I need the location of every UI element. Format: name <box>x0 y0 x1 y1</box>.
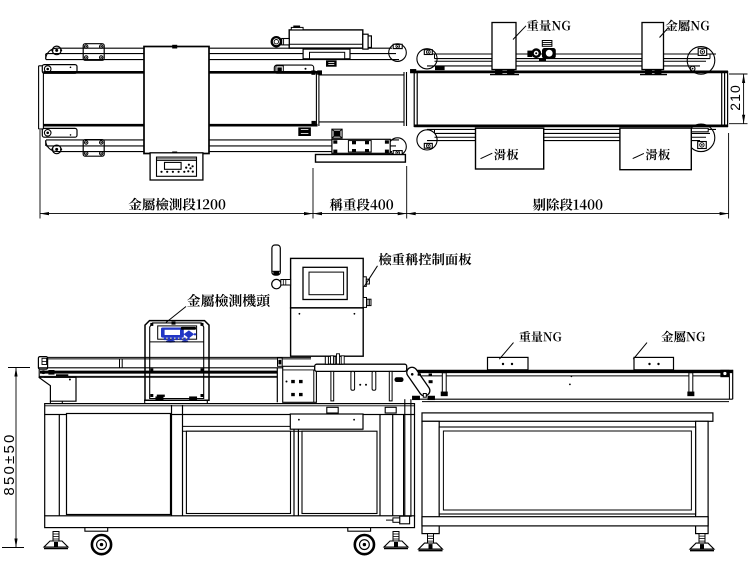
svg-text:850±50: 850±50 <box>1 432 18 495</box>
svg-text:210: 210 <box>727 84 743 111</box>
